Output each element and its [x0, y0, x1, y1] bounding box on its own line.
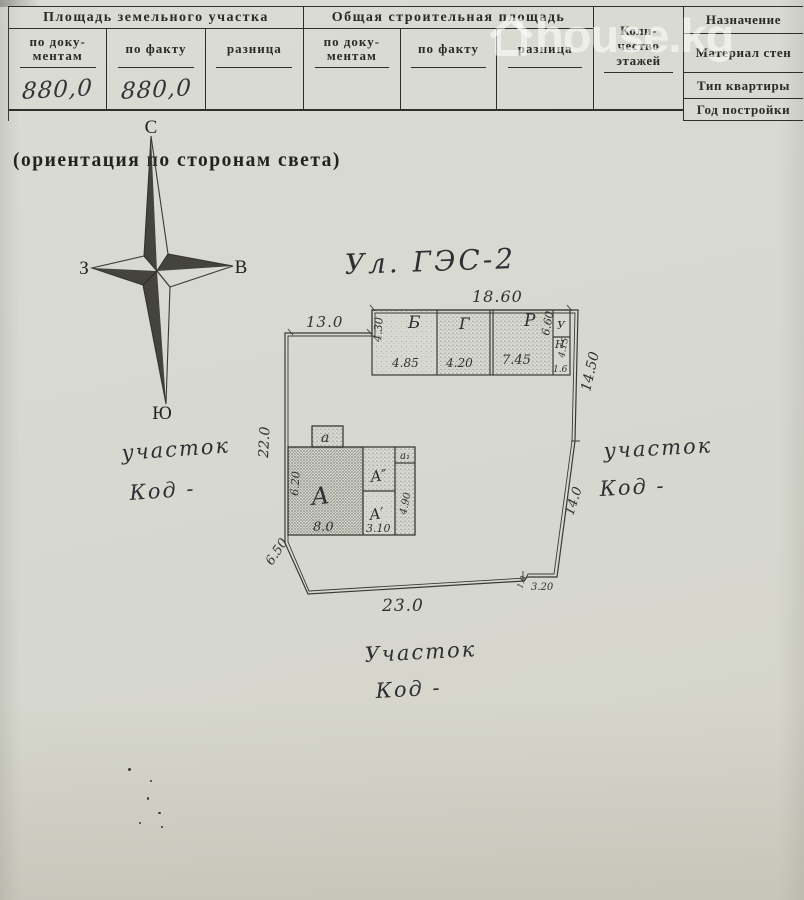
dim-room-a-height: 6.20: [288, 471, 303, 496]
porch-label: а: [321, 430, 329, 446]
ink-speckle: [158, 812, 161, 814]
ink-speckle: [150, 780, 152, 782]
bottom-parcel-label: Участок: [364, 637, 477, 667]
right-parcel-code: Код -: [598, 474, 666, 501]
compass-north-label: С: [145, 117, 158, 138]
dim-top-left: 13.0: [306, 313, 343, 331]
dim-right-lower: 14.0: [563, 485, 586, 517]
strip-label: а₁: [400, 451, 410, 462]
ink-speckle: [161, 826, 163, 828]
dim-outbuilding-b-height: 4.30: [371, 317, 386, 343]
dim-diagonal: 6.50: [263, 536, 292, 568]
outbuilding-b-label: Б: [407, 313, 421, 333]
bottom-parcel-code: Код -: [374, 676, 442, 703]
dim-outbuilding-r-height: 6.60: [539, 310, 556, 336]
ink-speckle: [139, 822, 141, 824]
dim-room-a-prime-width: 3.10: [366, 522, 391, 535]
left-parcel-code: Код -: [128, 476, 196, 505]
main-house-block: А А″ А′ а а₁ 6.20 8.0 3.10 4.90: [288, 426, 415, 535]
outbuilding-u-label: У: [557, 319, 566, 332]
dim-step: 3.20: [531, 582, 554, 593]
outbuilding-r-label: Р: [523, 311, 536, 331]
dim-right-upper: 14.50: [578, 350, 603, 393]
dim-outbuilding-g-width: 4.20: [445, 356, 473, 370]
scanned-technical-passport-page: Площадь земельного участка по доку-мента…: [0, 0, 804, 900]
dim-outbuilding-r-width: 7.45: [502, 353, 531, 368]
dim-outbuilding-n-width: 1.6: [553, 365, 568, 375]
dim-outbuilding-b-width: 4.85: [391, 356, 419, 370]
dim-building-top: 18.60: [472, 287, 523, 306]
ink-speckle: [147, 797, 149, 800]
site-plan-drawing: С Ю З В Ул. ГЭС-2 Б Г Р У Н 4.: [0, 0, 804, 900]
right-parcel-label: участок: [602, 433, 713, 463]
outbuilding-g-label: Г: [458, 314, 471, 333]
compass-west-label: З: [79, 258, 89, 279]
outbuilding-block: Б Г Р У Н 4.30 4.85 4.20 7.45 6.60 4.15 …: [371, 310, 571, 375]
dim-bottom: 23.0: [381, 596, 424, 616]
compass-rose: С Ю З В: [79, 117, 247, 424]
left-parcel-label: участок: [120, 433, 231, 465]
dim-left-side: 22.0: [256, 426, 274, 459]
compass-east-label: В: [235, 257, 248, 278]
parcel-labels: участок Код - участок Код - Участок Код …: [120, 433, 713, 703]
ink-speckle: [128, 768, 131, 771]
room-a-dprime-label: А″: [368, 466, 389, 486]
street-name-label: Ул. ГЭС-2: [344, 242, 517, 281]
dim-room-a-width: 8.0: [313, 520, 334, 535]
compass-south-label: Ю: [152, 403, 172, 424]
